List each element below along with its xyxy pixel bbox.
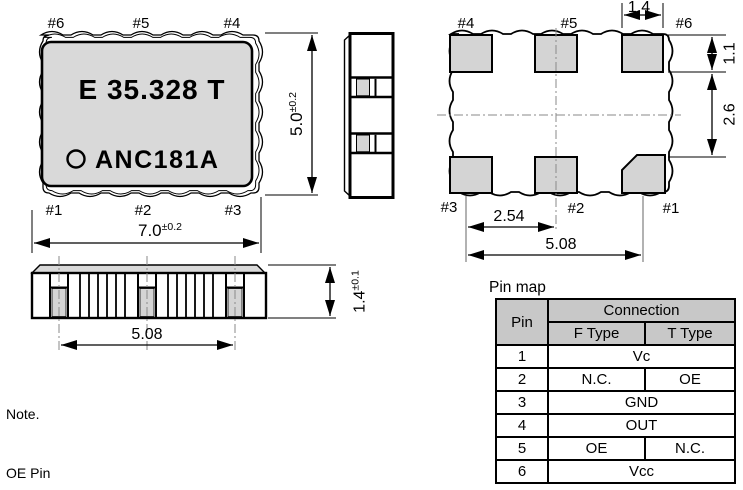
lid-profile <box>32 265 265 273</box>
pin-connection-f: OE <box>548 437 645 460</box>
dimension-text-pad-height: 1.1 <box>722 42 739 64</box>
note-subtitle: OE Pin <box>6 464 327 484</box>
pin-map-table: Pin Connection F Type T Type 1 Vc 2 N.C.… <box>495 298 736 484</box>
top-view-pin2-label: #2 <box>135 202 152 219</box>
pin-map-title: Pin map <box>489 279 546 297</box>
marking-text-frequency: E 35.328 T <box>79 74 226 105</box>
pin-row-3: 3 GND <box>496 391 735 414</box>
dimension-text-thickness: 1.4±0.1 <box>350 270 369 313</box>
dimension-thickness: 1.4±0.1 <box>268 265 369 318</box>
pin-map: Pin Connection F Type T Type 1 Vc 2 N.C.… <box>495 298 736 484</box>
pin-column-header: Pin <box>496 299 548 345</box>
pin-row-6: 6 Vcc <box>496 460 735 483</box>
front-view-drawing: 5.08 1.4±0.1 <box>32 256 369 352</box>
top-view-pin3-label: #3 <box>225 202 242 219</box>
pad-3 <box>450 157 492 193</box>
bottom-view-pin6-label: #6 <box>676 15 693 32</box>
dimension-text-row-gap: 2.6 <box>722 103 739 125</box>
pin-connection: OUT <box>548 414 735 437</box>
top-view-pin5-label: #5 <box>133 15 150 32</box>
dimension-text-width: 7.0±0.2 <box>138 221 182 240</box>
pin-number: 1 <box>496 345 548 368</box>
pin-connection-t: OE <box>645 368 735 391</box>
pin-connection: Vcc <box>548 460 735 483</box>
pin-connection-t: N.C. <box>645 437 735 460</box>
bottom-view-drawing: #4 #5 #6 #3 #2 #1 1.4 1.1 2.6 <box>437 0 739 262</box>
datasheet-figure: E 35.328 T ANC181A #6 #5 #4 #1 #2 #3 7.0… <box>0 0 743 490</box>
top-view-pin4-label: #4 <box>224 15 241 32</box>
dimension-pad-width: 1.4 <box>622 0 663 28</box>
dimension-text-height: 5.0±0.2 <box>287 92 306 136</box>
pin-number: 2 <box>496 368 548 391</box>
f-type-header: F Type <box>548 322 645 345</box>
dimension-text-pitch: 2.54 <box>493 208 524 225</box>
pin-number: 4 <box>496 414 548 437</box>
dimension-pad-height: 1.1 <box>668 35 739 72</box>
side-body <box>350 34 393 198</box>
note-block: Note. OE Pin OE pin = "H" or "open" : Sp… <box>6 366 327 490</box>
top-view-drawing: E 35.328 T ANC181A #6 #5 #4 #1 #2 #3 7.0… <box>32 15 318 253</box>
pin-connection: Vc <box>548 345 735 368</box>
dimension-terminal-span: 5.08 <box>61 326 233 345</box>
dimension-body-height: 5.0±0.2 <box>265 33 318 195</box>
bottom-view-pin2-label: #2 <box>568 200 585 217</box>
pin-row-4: 4 OUT <box>496 414 735 437</box>
pin-connection-f: N.C. <box>548 368 645 391</box>
side-pad <box>357 135 370 152</box>
note-title: Note. <box>6 405 327 425</box>
dimension-text-terminal-span: 5.08 <box>131 326 162 343</box>
side-view-drawing <box>345 34 394 198</box>
pin-row-5: 5 OE N.C. <box>496 437 735 460</box>
pin-row-2: 2 N.C. OE <box>496 368 735 391</box>
marking-text-model: ANC181A <box>95 146 219 174</box>
top-view-pin6-label: #6 <box>48 15 65 32</box>
side-pad <box>357 79 370 96</box>
pin-row-1: 1 Vc <box>496 345 735 368</box>
pin-number: 5 <box>496 437 548 460</box>
pin-number: 6 <box>496 460 548 483</box>
dimension-pad-pitch: 2.54 <box>466 196 554 262</box>
top-view-pin1-label: #1 <box>46 202 63 219</box>
pad-6 <box>622 35 663 72</box>
pin-map-header-row: Pin Connection <box>496 299 735 322</box>
pad-4 <box>450 35 492 72</box>
t-type-header: T Type <box>645 322 735 345</box>
dimension-text-span: 5.08 <box>545 236 576 253</box>
bottom-view-pin3-label: #3 <box>441 199 458 216</box>
connection-column-header: Connection <box>548 299 735 322</box>
bottom-view-pin4-label: #4 <box>458 15 475 32</box>
pin-connection: GND <box>548 391 735 414</box>
pin-number: 3 <box>496 391 548 414</box>
bottom-view-pin1-label: #1 <box>663 200 680 217</box>
bottom-view-pin5-label: #5 <box>561 15 578 32</box>
dimension-text-pad-width: 1.4 <box>628 0 650 16</box>
